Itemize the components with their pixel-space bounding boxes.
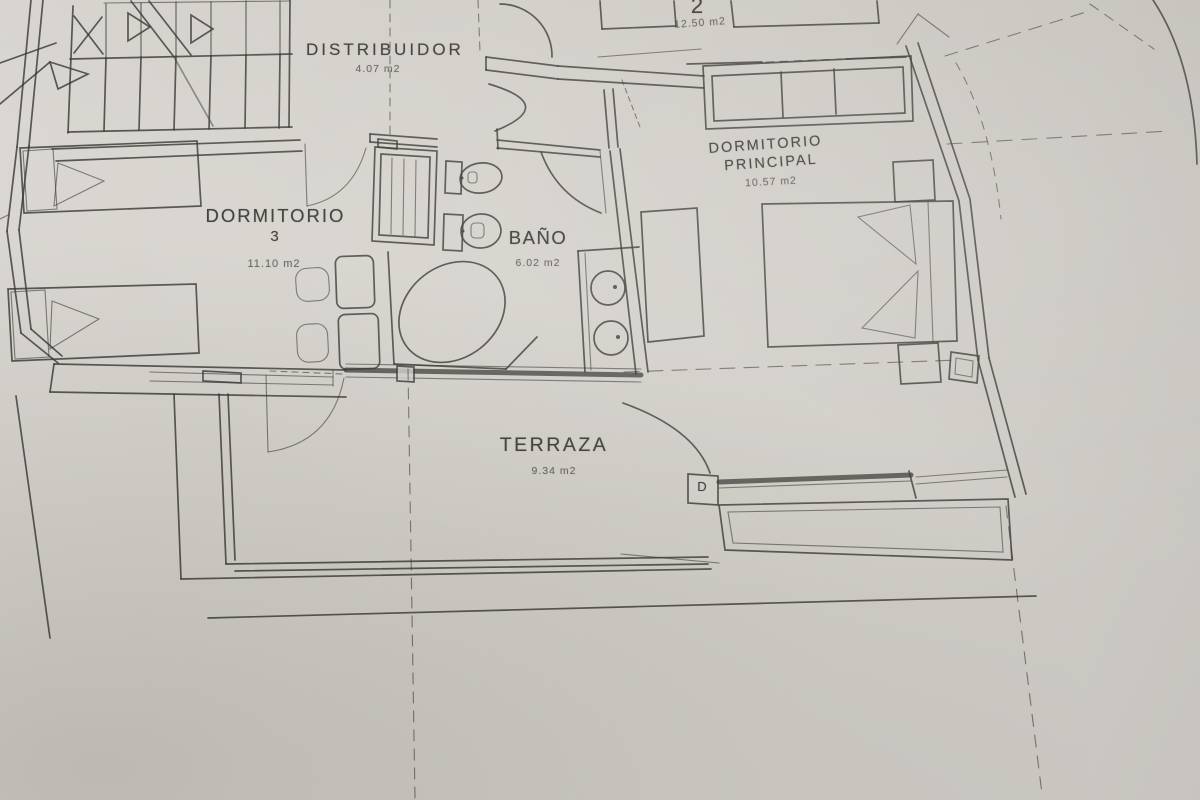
terraza-label: TERRAZA: [498, 434, 610, 457]
floor-plan-drawing: [0, 0, 1200, 800]
bedroom3-window-wall: [50, 364, 346, 397]
floorplan-photo: 2 12.50 m2 DISTRIBUIDOR 4.07 m2 DORMITOR…: [0, 0, 1200, 800]
distribuidor-area: 4.07 m2: [346, 63, 410, 75]
bathtub-icon: [379, 241, 525, 384]
nightstand: [893, 160, 935, 202]
bed: [762, 201, 957, 347]
stairs-arrow-icon: [128, 13, 150, 41]
stairs-arrow-icon: [191, 15, 213, 43]
terrace: [16, 371, 1036, 638]
staircase: [52, 0, 302, 161]
nightstand: [898, 343, 941, 384]
left-exterior-wall: [0, 0, 88, 363]
dormitorio3-number: 3: [203, 228, 348, 245]
room2-wardrobe: [600, 1, 906, 64]
dormitorio3-area: 11.10 m2: [238, 258, 310, 270]
toilet-icon: [458, 161, 503, 196]
bidet-icon: [460, 212, 503, 249]
distribuidor-label: DISTRIBUIDOR: [306, 40, 450, 60]
sink-icon: [591, 271, 625, 305]
bano-label: BAÑO: [503, 227, 573, 249]
terraza-area: 9.34 m2: [518, 465, 590, 477]
dormitorio3-label: DORMITORIO: [203, 205, 348, 227]
railing: [719, 475, 911, 482]
dresser: [641, 208, 704, 342]
hallway-walls: [370, 0, 704, 213]
bano-area: 6.02 m2: [506, 257, 570, 269]
door-marker-label: D: [692, 479, 712, 494]
bathroom-fixtures: [346, 139, 648, 383]
sink-icon: [594, 321, 628, 355]
master-bedroom: [598, 14, 1026, 497]
property-lines: [408, 0, 1197, 799]
bidet-icon: [443, 214, 463, 251]
bedroom3-furniture: [8, 141, 380, 370]
